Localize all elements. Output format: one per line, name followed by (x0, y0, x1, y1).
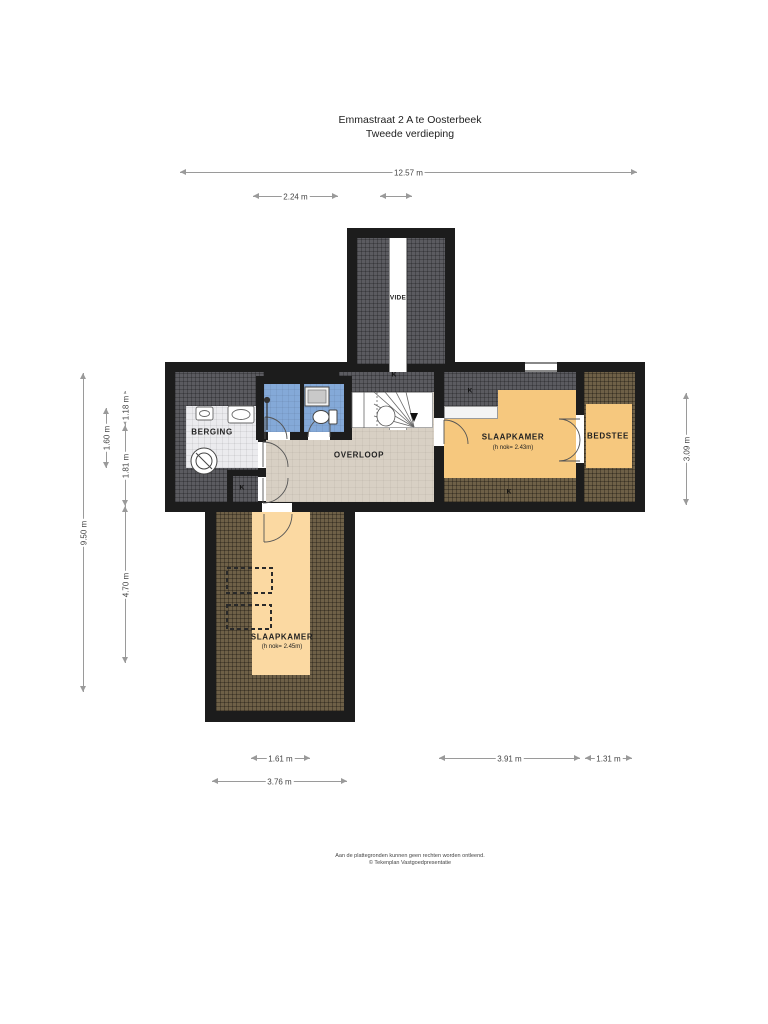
arrow-left-icon (253, 193, 259, 199)
disclaimer-line1: Aan de plattegronden kunnen geen rechten… (335, 853, 485, 860)
dimension-label: 3.91 m (495, 755, 523, 764)
dormer-ledge (444, 406, 498, 419)
arrow-right-icon (631, 169, 637, 175)
dimension-top-width: 12.57 m (180, 172, 637, 173)
knee-wall-marker: K (507, 489, 512, 496)
sloped-area-vide-right (407, 238, 445, 364)
knee-wall-marker: K (240, 485, 245, 492)
title-floor: Tweede verdieping (339, 128, 482, 142)
wall-closet-side (227, 470, 233, 502)
knee-wall-marker: K (392, 372, 397, 379)
room-label-bedstee: BEDSTEE (587, 432, 629, 441)
dimension-label: 9.50 m (80, 518, 89, 546)
dimension-left-seg-c: 1.81 m (125, 425, 126, 506)
disclaimer-line2: © Tekenplan Vastgoedpresentatie (335, 860, 485, 867)
arrow-up-icon (122, 506, 128, 512)
toilet-room-floor (304, 384, 344, 432)
room-label-slaapkamer-right: SLAAPKAMER (482, 433, 544, 442)
arrow-up-icon (103, 408, 109, 414)
arrow-down-icon (122, 657, 128, 663)
disclaimer: Aan de plattegronden kunnen geen rechten… (335, 853, 485, 867)
dimension-top-left-segment: 2.24 m (253, 196, 338, 197)
room-label-vide: VIDE (390, 295, 406, 302)
dimension-left-seg-b: 1.60 m (106, 408, 107, 468)
shower-room-floor (264, 384, 300, 432)
dimension-label: 1.81 m (122, 451, 131, 479)
room-label-berging: BERGING (191, 428, 233, 437)
dimension-label: 1.18 m (122, 394, 131, 422)
arrow-down-icon (80, 686, 86, 692)
dimension-label: 3.76 m (265, 778, 293, 787)
arrow-left-icon (585, 755, 591, 761)
room-sublabel-slaapkamer-bottom: (h nok= 2.45m) (262, 644, 303, 650)
door-opening-bedstee (576, 415, 584, 463)
room-label-overloop: OVERLOOP (334, 451, 384, 460)
arrow-up-icon (80, 373, 86, 379)
arrow-up-icon (683, 393, 689, 399)
arrow-down-icon (103, 462, 109, 468)
door-opening-berging (258, 442, 266, 468)
dimension-left-seg-d: 4.70 m (125, 506, 126, 663)
arrow-left-icon (180, 169, 186, 175)
room-sublabel-slaapkamer-right: (h nok= 2.43m) (493, 445, 534, 451)
arrow-up-icon (122, 425, 128, 431)
title-address: Emmastraat 2 A te Oosterbeek (339, 114, 482, 128)
floorplan-page: Emmastraat 2 A te Oosterbeek Tweede verd… (0, 0, 768, 1024)
window-dormer (525, 362, 557, 372)
arrow-right-icon (304, 755, 310, 761)
dimension-bottom-seg-a: 1.61 m (251, 758, 310, 759)
arrow-down-icon (683, 499, 689, 505)
arrow-left-icon (380, 193, 386, 199)
dimension-label: 2.24 m (281, 193, 309, 202)
arrow-left-icon (251, 755, 257, 761)
door-opening-closet (258, 477, 266, 501)
dimension-bottom-total: 3.76 m (212, 781, 347, 782)
staircase-floor (339, 392, 433, 428)
dimension-label: 1.60 m (103, 424, 112, 452)
slaapkamer-right-floor-lower (444, 419, 498, 478)
dimension-bottom-seg-c: 1.31 m (585, 758, 632, 759)
sloped-area-vide-left (357, 238, 389, 364)
page-title: Emmastraat 2 A te Oosterbeek Tweede verd… (339, 114, 482, 141)
door-opening-toilet (308, 432, 330, 440)
room-label-slaapkamer-bottom: SLAAPKAMER (251, 633, 313, 642)
arrow-left-icon (212, 778, 218, 784)
dimension-left-seg-a: 1.18 m (125, 391, 126, 425)
dimension-bottom-seg-b: 3.91 m (439, 758, 580, 759)
door-opening-slaapkamer-bottom (262, 503, 292, 512)
dimension-label: 1.31 m (594, 755, 622, 764)
plan-symbols-layer (0, 0, 768, 1024)
slaapkamer-bottom-floor (252, 512, 310, 675)
dimension-label: 1.61 m (266, 755, 294, 764)
dimension-label: 4.70 m (122, 570, 131, 598)
arrow-right-icon (406, 193, 412, 199)
dimension-left-total: 9.50 m (83, 373, 84, 692)
arrow-right-icon (626, 755, 632, 761)
door-opening-shower (268, 432, 290, 440)
arrow-left-icon (439, 755, 445, 761)
berging-floor (186, 406, 260, 468)
knee-wall-marker: K (468, 388, 473, 395)
dimension-top-small-segment (380, 196, 412, 197)
dimension-label: 12.57 m (392, 169, 425, 178)
sloped-area-above-stairs (339, 372, 434, 392)
arrow-right-icon (574, 755, 580, 761)
dimension-label: 3.09 m (683, 435, 692, 463)
door-opening-slaapkamer-right (434, 418, 444, 446)
arrow-right-icon (341, 778, 347, 784)
arrow-right-icon (332, 193, 338, 199)
dimension-right-height: 3.09 m (686, 393, 687, 505)
